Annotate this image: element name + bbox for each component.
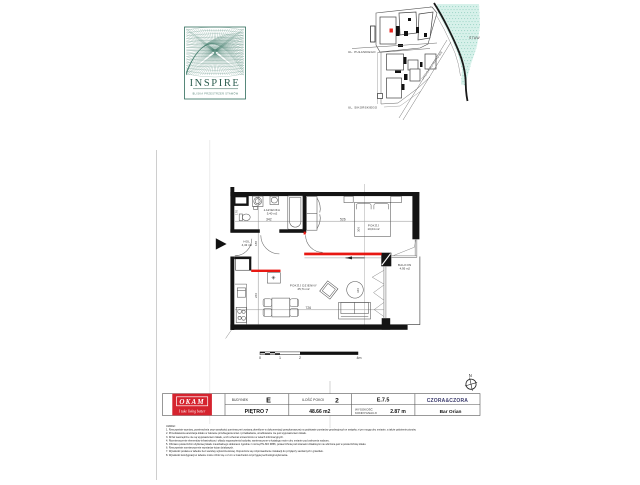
svg-text:OKAM: OKAM (179, 398, 204, 406)
svg-text:2: 2 (335, 397, 339, 404)
svg-text:2: 2 (299, 356, 301, 360)
svg-text:25,71 m2: 25,71 m2 (297, 287, 309, 291)
svg-text:KONDYGNACJI: KONDYGNACJI (355, 411, 377, 415)
svg-text:ILOŚĆ POKOI: ILOŚĆ POKOI (302, 397, 324, 402)
svg-text:1. Rzeczywiste wymiary, powier: 1. Rzeczywiste wymiary, powierzchnia ora… (166, 428, 417, 432)
svg-text:5. Obmiaru powierzchni użytkow: 5. Obmiaru powierzchni użytkowej lokalu … (166, 442, 366, 446)
svg-text:4. Rozmieszczenie elementów in: 4. Rozmieszczenie elementów infrastruktu… (166, 438, 330, 442)
svg-text:2.87 m: 2.87 m (390, 409, 406, 415)
svg-text:CZORA&CZORA: CZORA&CZORA (427, 398, 469, 404)
svg-text:7. Wysokość podana w tabelce b: 7. Wysokość podana w tabelce bez warstwy… (166, 449, 324, 453)
svg-text:4,95 m2: 4,95 m2 (400, 267, 411, 271)
svg-text:2. Przedstawiona aranżacja lok: 2. Przedstawiona aranżacja lokalu w zakr… (166, 431, 307, 435)
svg-text:342: 342 (266, 217, 272, 221)
svg-text:BLISKA PRZESTRZEŃ STAWÓW: BLISKA PRZESTRZEŃ STAWÓW (193, 93, 239, 96)
svg-text:E.7.5: E.7.5 (377, 398, 390, 404)
svg-text:188: 188 (254, 241, 258, 246)
svg-text:6. Rzeczywiste rozmieszczenie: 6. Rzeczywiste rozmieszczenie wymiarów ś… (166, 446, 234, 450)
svg-text:0: 0 (259, 356, 261, 360)
svg-text:346: 346 (356, 288, 360, 293)
svg-text:Bar Orian: Bar Orian (440, 409, 462, 415)
svg-text:BUDYNEK: BUDYNEK (232, 398, 249, 402)
svg-text:I take living better: I take living better (178, 409, 206, 413)
svg-text:4,43 m2: 4,43 m2 (242, 243, 253, 247)
svg-text:8. Wysokość kondygnacji w tabe: 8. Wysokość kondygnacji w tabelce może r… (166, 453, 288, 457)
svg-text:STAW: STAW (469, 36, 480, 40)
svg-text:526: 526 (340, 217, 346, 221)
svg-text:INSPIRE: INSPIRE (190, 78, 241, 89)
svg-text:UL. PUŁASKIEGO: UL. PUŁASKIEGO (348, 50, 376, 54)
svg-text:48.66 m2: 48.66 m2 (309, 409, 330, 415)
svg-text:306: 306 (356, 227, 360, 232)
svg-text:170: 170 (234, 210, 238, 215)
svg-text:N: N (469, 373, 472, 378)
svg-text:3. Drzwi wewnętrzne nie są wyp: 3. Drzwi wewnętrzne nie są wyposażeniem … (166, 435, 284, 439)
svg-text:4m: 4m (357, 356, 362, 360)
svg-text:UWAGI:: UWAGI: (166, 424, 176, 428)
svg-text:UL. SIKORSKIEGO: UL. SIKORSKIEGO (348, 106, 378, 110)
svg-text:E: E (266, 395, 271, 404)
svg-text:10,04 m2: 10,04 m2 (367, 227, 379, 231)
svg-text:726: 726 (305, 306, 311, 310)
svg-text:1: 1 (279, 356, 281, 360)
svg-text:5,40 m2: 5,40 m2 (267, 212, 278, 216)
svg-text:PIĘTRO 7: PIĘTRO 7 (245, 409, 269, 415)
svg-text:266: 266 (254, 293, 258, 298)
